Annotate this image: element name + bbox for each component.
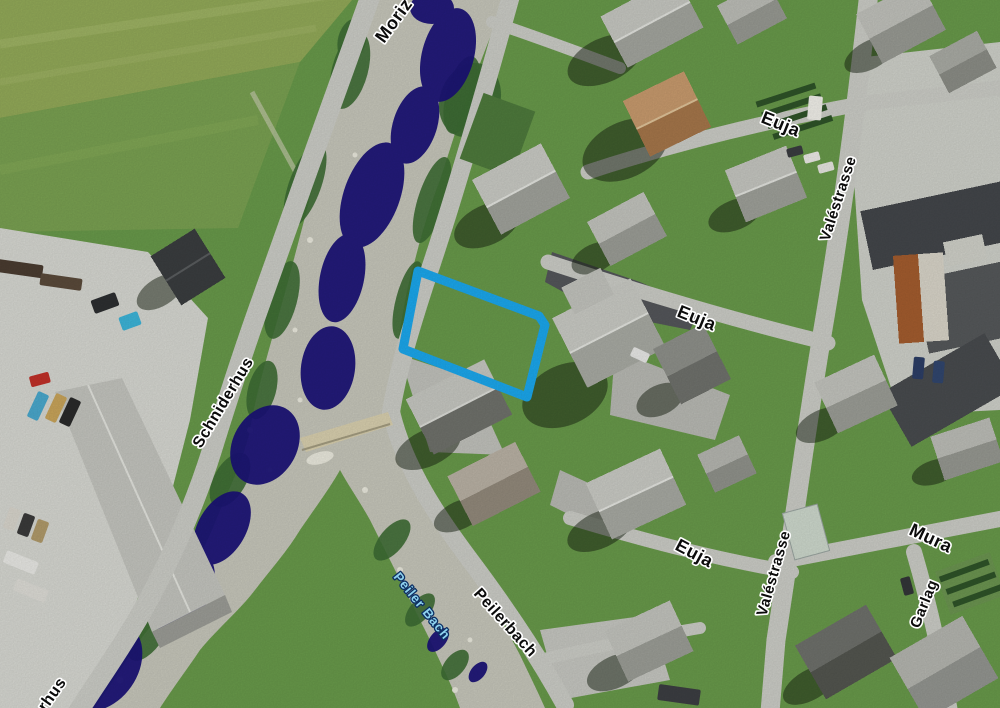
map-canvas[interactable]: MorizEujaEujaEujaValéstrasseValéstrasseS…: [0, 0, 1000, 708]
photo-grain-overlay: [0, 0, 1000, 708]
satellite-map-view[interactable]: MorizEujaEujaEujaValéstrasseValéstrasseS…: [0, 0, 1000, 708]
